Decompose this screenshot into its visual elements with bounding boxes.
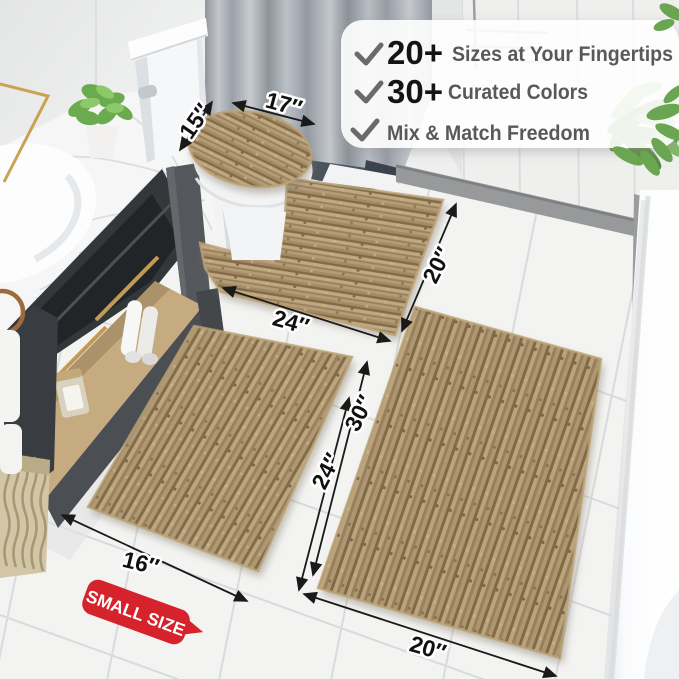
svg-text:20+: 20+ bbox=[387, 34, 443, 71]
svg-text:Curated Colors: Curated Colors bbox=[448, 81, 588, 104]
svg-text:Sizes at Your Fingertips: Sizes at Your Fingertips bbox=[452, 43, 673, 66]
svg-text:Mix & Match Freedom: Mix & Match Freedom bbox=[387, 122, 590, 145]
svg-text:30+: 30+ bbox=[387, 73, 443, 110]
